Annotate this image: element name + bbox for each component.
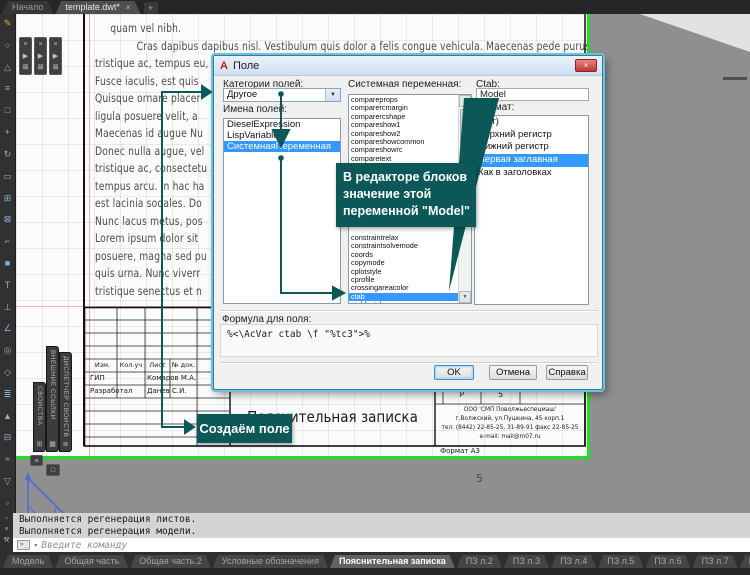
triangle-icon[interactable]: △ <box>1 61 15 74</box>
drawing-text-line: Cras dapibus dapibus nisl. Vestibulum qu… <box>95 38 607 56</box>
properties-icon: ⊞ <box>37 440 43 448</box>
field-names-list[interactable]: DieselExpressionLispVariableСистемнаяПер… <box>223 118 341 304</box>
company-line: ООО 'СМП Поволжьеспецмаш' <box>437 406 583 415</box>
perpendicular-icon[interactable]: ⊥ <box>1 301 15 314</box>
close-icon[interactable]: × <box>38 40 42 49</box>
angle-icon[interactable]: ∠ <box>1 322 15 335</box>
format-item[interactable]: Как в заголовках <box>475 167 588 180</box>
palette-tab-label: СВОЙСТВА <box>36 386 43 425</box>
field-category-value: Другое <box>227 89 257 100</box>
viewport-border-bottom <box>16 456 590 459</box>
command-history-line: Выполняется регенерация модели. <box>19 526 744 538</box>
dialog-title-bar[interactable]: A Поле <box>214 56 602 76</box>
format-item[interactable]: Верхний регистр <box>475 129 588 142</box>
box-icon: □ <box>51 466 55 475</box>
scrollbar-dash <box>723 77 747 80</box>
titleblock-role-razrabotal: Разработал <box>90 387 144 395</box>
dialog-close-button[interactable]: × <box>575 59 597 72</box>
viewport-tool-button-1[interactable]: ≡ <box>30 455 43 466</box>
sysvar-item[interactable]: crossingareacolor <box>349 284 458 292</box>
menu-icon: ≡ <box>34 457 38 466</box>
layout-tab[interactable]: Модель <box>3 555 53 568</box>
palette-tab-label: ВНЕШНИЕ ССЫЛКИ <box>49 350 56 420</box>
collapsed-palette-1[interactable]: × ▶ ⊠ <box>19 37 32 75</box>
command-icon[interactable]: >_ <box>17 540 30 550</box>
diamond-icon[interactable]: ◇ <box>1 366 15 379</box>
wave-icon[interactable]: ≈ <box>1 453 15 466</box>
layout-tab[interactable]: ПЗ л.7 <box>693 555 738 568</box>
square-outline-icon[interactable]: □ <box>1 104 15 117</box>
autocad-logo-icon: A <box>220 60 228 72</box>
command-side-column: ▫ × ⚒ <box>0 513 13 552</box>
file-tab-start[interactable]: Начало <box>2 1 53 14</box>
company-line: тел. (8442) 22-85-25, 31-89-91 факс 22-8… <box>437 424 583 433</box>
layout-tab[interactable]: ПЗ л.5 <box>598 555 643 568</box>
filled-square-icon[interactable]: ■ <box>1 257 15 270</box>
field-category-dropdown[interactable]: Другое ▼ <box>223 88 341 102</box>
pencil-icon[interactable]: ✎ <box>1 17 15 30</box>
pin-icon[interactable]: ⊠ <box>23 63 29 72</box>
layout-tab[interactable]: ПЗ л.2 <box>457 555 502 568</box>
command-history[interactable]: Выполняется регенерация листов. Выполняе… <box>13 513 750 538</box>
titleblock-name-razrabotal: Данев С.И. <box>147 387 207 395</box>
rectangle-icon[interactable]: ▭ <box>1 170 15 183</box>
draw-toolbar: ✎○△≡□+↻▭⊞⊠⌐■T⊥∠◎◇≣▲⊟≈▽▫ <box>0 14 16 513</box>
format-list[interactable]: (нет)Верхний регистрНижний регистрПервая… <box>474 115 589 305</box>
command-placeholder: Введите команду <box>41 540 127 551</box>
layout-tab[interactable]: Общая часть.2 <box>130 555 210 568</box>
file-tab-template[interactable]: template.dwt* × <box>55 1 140 14</box>
field-name-item[interactable]: LispVariable <box>224 130 340 141</box>
close-icon[interactable]: × <box>53 40 57 49</box>
dot-icon[interactable]: ▫ <box>1 497 15 510</box>
layout-tab-bar: МодельОбщая частьОбщая часть.2Условные о… <box>0 552 750 568</box>
format-item[interactable]: (нет) <box>475 116 588 129</box>
field-name-item[interactable]: DieselExpression <box>224 119 340 130</box>
layout-tab[interactable]: ПЗ л.4 <box>551 555 596 568</box>
equal-lines-icon[interactable]: ≣ <box>1 388 15 401</box>
up-triangle-icon[interactable]: ▲ <box>1 410 15 423</box>
tooltip-line: В редакторе блоков <box>343 169 469 186</box>
palette-tab-layer-manager[interactable]: ДИСПЕТЧЕР СВОЙСТВ СЛОЁВ ≣ <box>59 352 72 452</box>
palette-tab-label: ДИСПЕТЧЕР СВОЙСТВ СЛОЁВ <box>62 356 69 440</box>
field-names-label: Имена полей: <box>223 104 287 115</box>
close-icon[interactable]: × <box>4 526 8 534</box>
command-history-line: Выполняется регенерация листов. <box>19 514 744 526</box>
grid-plus-icon[interactable]: ⊞ <box>1 192 15 205</box>
canvas-corner-wedge <box>640 14 750 52</box>
sysvar-list-bottom: constraintrelaxconstraintsolvemodecoords… <box>349 234 458 304</box>
field-name-item[interactable]: СистемнаяПеременная <box>224 141 340 152</box>
xref-icon: ▦ <box>49 440 56 448</box>
rotate-icon[interactable]: ↻ <box>1 148 15 161</box>
help-button[interactable]: Справка <box>546 365 588 380</box>
status-strip <box>0 568 750 575</box>
palette-tab-xrefs[interactable]: ВНЕШНИЕ ССЫЛКИ ▦ <box>46 346 59 452</box>
sysvar-list-top: comparepropscomparercmargincomparercshap… <box>349 96 458 172</box>
layout-tab[interactable]: Условные обозначения <box>213 555 328 568</box>
titleblock-header-koluch: Кол.уч <box>117 361 145 369</box>
layout-tab[interactable]: ПЗ л.3 <box>504 555 549 568</box>
formula-value[interactable]: %<\AcVar ctab \f "%tc3">% <box>220 324 598 357</box>
stray-page-number: 5 <box>476 472 483 485</box>
chevron-down-icon[interactable]: ▾ <box>34 542 37 549</box>
dot-icon: ▫ <box>5 515 7 523</box>
close-icon[interactable]: × <box>126 1 131 14</box>
format-label: Формат: <box>476 102 514 113</box>
text-icon[interactable]: T <box>1 279 15 292</box>
format-item[interactable]: Первая заглавная <box>475 154 588 167</box>
scroll-down-icon[interactable]: ▼ <box>459 291 471 303</box>
lines-icon[interactable]: ≡ <box>1 82 15 95</box>
titleblock-name-gip: Комаров М.А. <box>147 374 207 382</box>
play-icon[interactable]: ▶ <box>23 52 28 61</box>
down-triangle-icon[interactable]: ▽ <box>1 475 15 488</box>
sysvar-label: Системная переменная: <box>348 79 461 90</box>
ok-button[interactable]: OK <box>434 365 474 380</box>
layers-icon: ≣ <box>63 440 69 448</box>
titleblock-sheet-number: 5 <box>481 390 520 399</box>
sysvar-item[interactable]: ctablestyle <box>349 301 458 304</box>
move-icon[interactable]: + <box>1 126 15 139</box>
separator <box>220 310 598 311</box>
play-icon[interactable]: ▶ <box>53 52 58 61</box>
boxed-x-icon[interactable]: ⊠ <box>1 213 15 226</box>
file-tab-bar: Начало template.dwt* × + <box>0 0 750 14</box>
ucs-icon <box>28 478 66 516</box>
titleblock-role-gip: ГИП <box>90 374 144 382</box>
scrollbar-thumb[interactable] <box>460 109 470 147</box>
titleblock-company-info: ООО 'СМП Поволжьеспецмаш' г.Волжский, ул… <box>437 406 583 442</box>
viewport-tool-button-2[interactable]: □ <box>46 464 60 476</box>
close-icon[interactable]: × <box>23 40 27 49</box>
titleblock-header-izm: Изм. <box>88 361 117 369</box>
palette-tab-properties[interactable]: СВОЙСТВА ⊞ <box>33 382 46 452</box>
layout-tab[interactable]: ПЗ л.6 <box>645 555 690 568</box>
command-input[interactable]: >_ ▾ Введите команду <box>13 538 750 552</box>
collapsed-palette-3[interactable]: × ▶ ⊠ <box>49 37 62 75</box>
format-note: Формат А3 <box>380 447 540 455</box>
wrench-icon[interactable]: ⚒ <box>3 537 9 545</box>
pin-icon[interactable]: ⊠ <box>38 63 44 72</box>
circle-icon[interactable]: ○ <box>1 39 15 52</box>
layout-tab[interactable]: Общая часть <box>55 555 128 568</box>
drawing-text-line: quam vel nibh. <box>95 20 607 38</box>
chevron-down-icon[interactable]: ▼ <box>325 89 340 101</box>
ctab-value-field: Model <box>476 88 589 101</box>
titleblock-stage: Р <box>443 390 481 399</box>
tooltip-line: значение этой <box>343 186 469 203</box>
dialog-title: Поле <box>233 60 259 72</box>
ucs-arrowheads <box>25 472 72 519</box>
target-icon[interactable]: ◎ <box>1 344 15 357</box>
cancel-button[interactable]: Отмена <box>489 365 537 380</box>
separator <box>220 362 598 363</box>
collapsed-palette-2[interactable]: × ▶ ⊠ <box>34 37 47 75</box>
titleblock-header-ndok: № док. <box>170 361 197 369</box>
titleblock-header-list: Лист <box>145 361 170 369</box>
file-tab-label: template.dwt* <box>65 1 120 14</box>
boxed-minus-icon[interactable]: ⊟ <box>1 431 15 444</box>
play-icon[interactable]: ▶ <box>38 52 43 61</box>
new-tab-button[interactable]: + <box>144 2 158 14</box>
tooltip-line: переменной "Model" <box>343 203 469 220</box>
layout-tab[interactable]: ПЗ л.8 <box>740 555 750 568</box>
format-item[interactable]: Нижний регистр <box>475 141 588 154</box>
layout-tab[interactable]: Пояснительная записка <box>330 555 455 568</box>
tooltip-callout: В редакторе блоков значение этой перемен… <box>336 163 476 227</box>
company-line: г.Волжский, ул.Пушкина, 45 корп.1 <box>437 415 583 424</box>
scroll-up-icon[interactable]: ▲ <box>459 95 471 107</box>
corner-icon[interactable]: ⌐ <box>1 235 15 248</box>
company-line: e-mail: mail@m07.ru <box>437 433 583 442</box>
pin-icon[interactable]: ⊠ <box>53 63 59 72</box>
create-field-callout: Создаём поле <box>197 414 292 443</box>
autocad-window: Начало template.dwt* × + ✎○△≡□+↻▭⊞⊠⌐■T⊥∠… <box>0 0 750 575</box>
